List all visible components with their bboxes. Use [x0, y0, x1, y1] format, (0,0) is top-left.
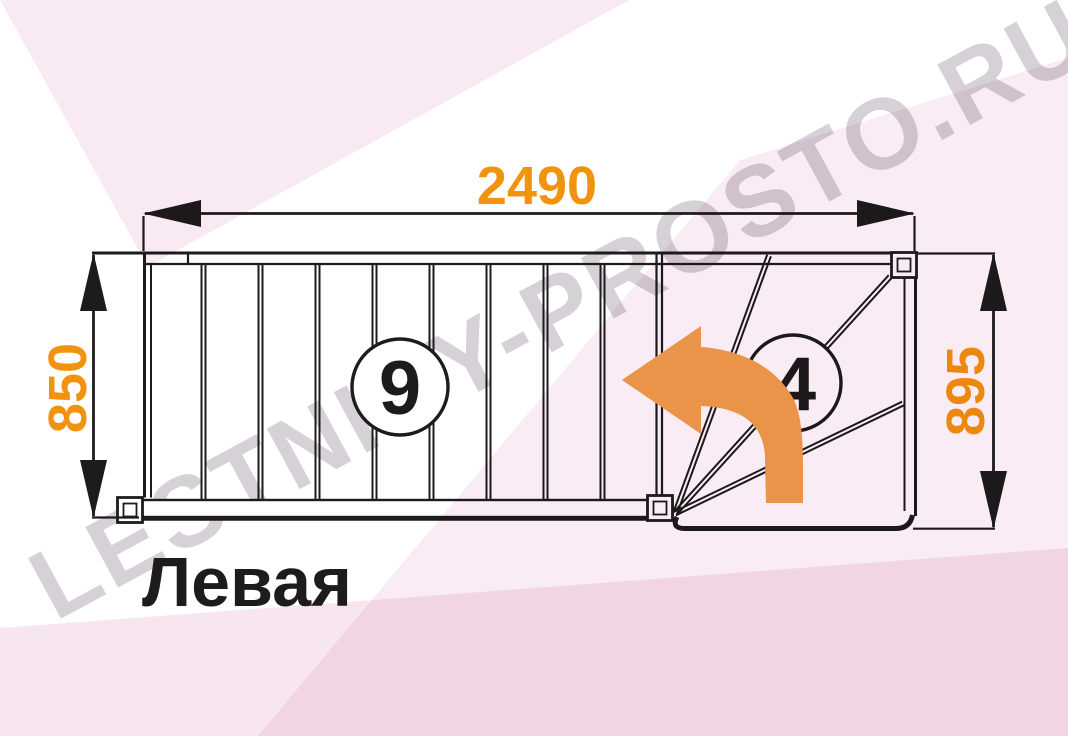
- dim-flight-width-label: 850: [38, 343, 98, 433]
- dim-arrow-right-icon: [857, 200, 915, 227]
- dim-arrow-up-left-icon: [80, 253, 107, 311]
- winder-bottom-edge-line: [675, 515, 912, 529]
- dim-arrow-left-icon: [143, 200, 201, 227]
- dim-total-length-label: 2490: [477, 156, 597, 216]
- staircase-plan-diagram: LESTNICY-PROSTO.RU: [0, 0, 1068, 736]
- newel-post-winder-pivot: [648, 496, 673, 521]
- straight-flight-step-count: 9: [379, 346, 421, 431]
- newel-post-bottom-left: [118, 498, 143, 523]
- newel-post-top-right: [892, 253, 917, 278]
- dim-arrow-down-left-icon: [80, 460, 107, 518]
- dimension-labels: 2490 850 895: [38, 156, 996, 436]
- dim-arrow-up-right-icon: [980, 253, 1007, 311]
- bottom-stringer-band: [140, 500, 653, 517]
- staircase-plan-drawing: 9 4 2490 850: [0, 0, 1068, 736]
- dim-arrow-down-right-icon: [980, 471, 1007, 529]
- diagram-title: Левая: [142, 543, 352, 621]
- dim-winder-width-label: 895: [936, 346, 996, 436]
